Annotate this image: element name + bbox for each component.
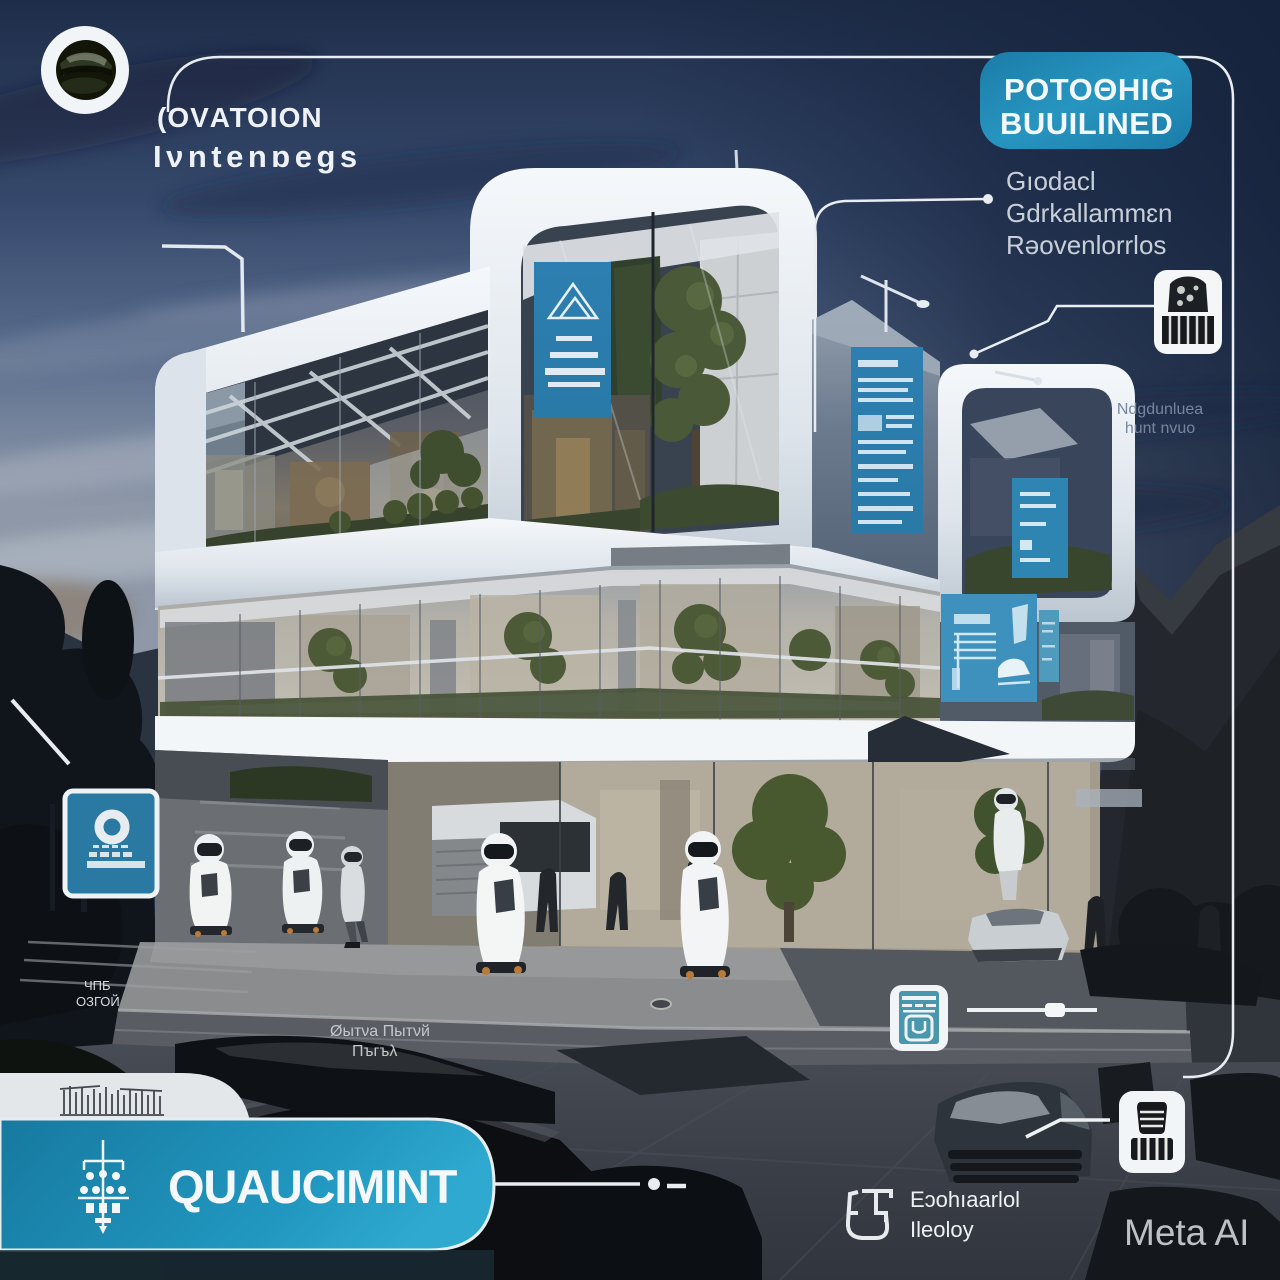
svg-text:(ОVАТОION: (ОVАТОION	[157, 102, 323, 133]
svg-text:Gıodacl: Gıodacl	[1006, 166, 1096, 196]
svg-text:QUAUCIMINT: QUAUCIMINT	[168, 1160, 458, 1213]
svg-text:Пъгъλ: Пъгъλ	[352, 1043, 397, 1060]
svg-text:ОЗГОЙ: ОЗГОЙ	[76, 994, 120, 1009]
svg-text:POTOΘHIG: POTOΘHIG	[1004, 72, 1175, 107]
svg-text:Iνntеnɒеgs: Iνntеnɒеgs	[153, 139, 362, 174]
svg-text:Gdrkallammɛn: Gdrkallammɛn	[1006, 198, 1173, 228]
svg-text:hunt nvuo: hunt nvuo	[1125, 420, 1195, 437]
svg-text:Rəovenlorrlos: Rəovenlorrlos	[1006, 230, 1166, 260]
svg-text:Ilеoloу: Ilеoloу	[910, 1217, 974, 1242]
svg-text:Eɔohıaarlol: Eɔohıaarlol	[910, 1187, 1020, 1212]
svg-text:ЧПБ: ЧПБ	[84, 978, 111, 993]
svg-text:Meta AI: Meta AI	[1124, 1212, 1249, 1253]
svg-text:BUUILINED: BUUILINED	[1000, 106, 1173, 141]
svg-text:Ndgdunluеа: Ndgdunluеа	[1117, 401, 1203, 418]
svg-text:Øытνа Пытνй: Øытνа Пытνй	[330, 1023, 430, 1040]
